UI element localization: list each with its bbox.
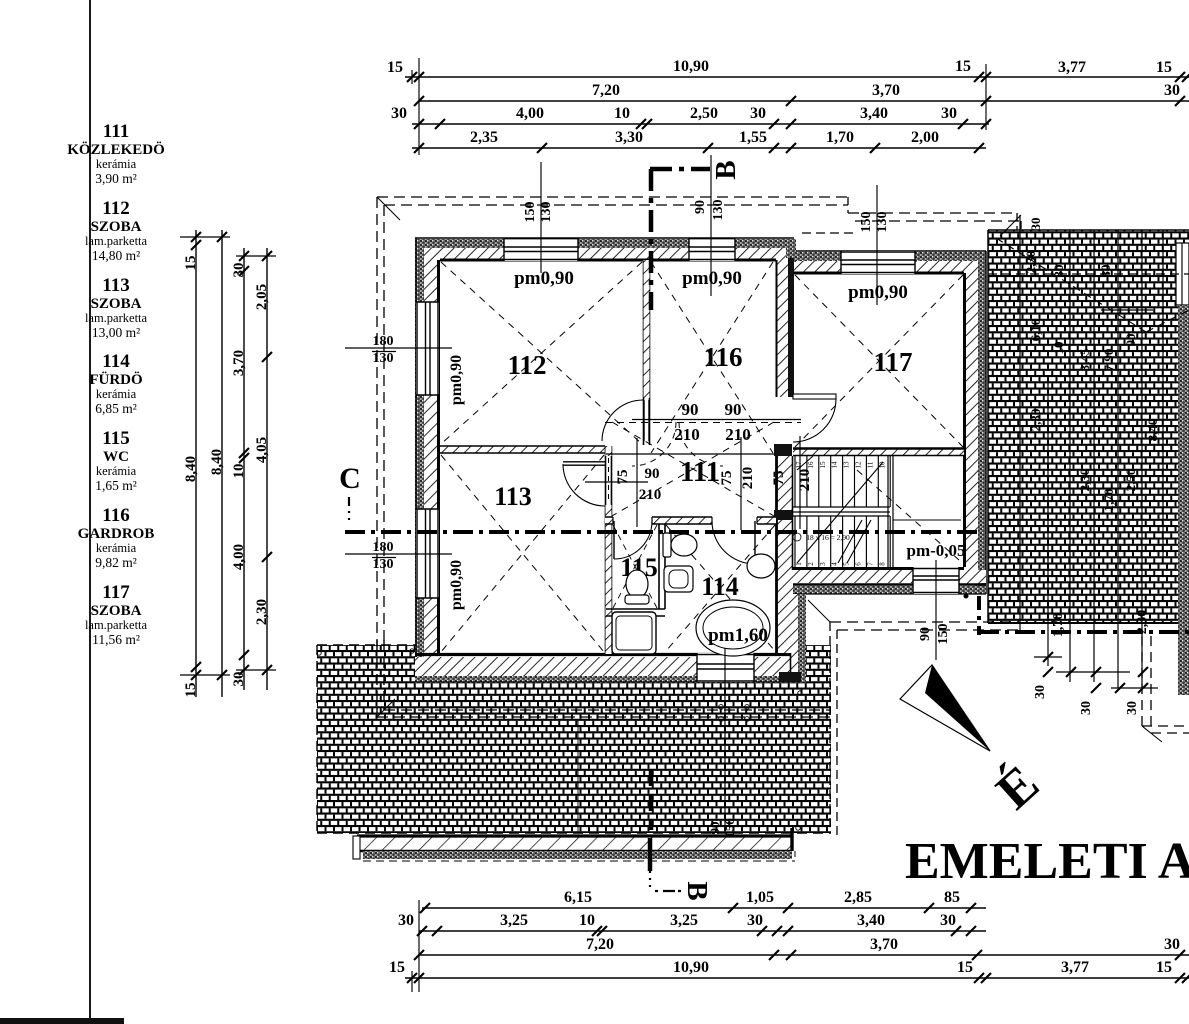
svg-text:30: 30 [941,105,957,122]
svg-text:2,30: 2,30 [254,599,270,625]
svg-text:13,00 m²: 13,00 m² [92,325,140,340]
svg-text:1,70: 1,70 [826,129,854,146]
svg-text:10: 10 [231,464,247,479]
svg-text:9,82 m²: 9,82 m² [95,555,137,570]
svg-text:7,90: 7,90 [1101,349,1116,372]
svg-text:116: 116 [102,505,129,526]
svg-text:30: 30 [747,912,763,929]
svg-text:2,30: 2,30 [1023,251,1038,274]
svg-text:kerámia: kerámia [96,464,137,478]
svg-text:kerámia: kerámia [96,387,137,401]
svg-text:C: C [339,462,361,495]
svg-text:1,70: 1,70 [1101,489,1116,512]
svg-text:180: 180 [373,540,394,555]
svg-text:2,30: 2,30 [1028,409,1043,432]
svg-text:210: 210 [639,487,662,503]
svg-text:150: 150 [936,624,951,645]
svg-text:14,80 m²: 14,80 m² [92,248,140,263]
svg-text:1,55: 1,55 [739,129,767,146]
svg-text:30: 30 [1098,265,1113,278]
svg-text:112: 112 [102,198,129,219]
svg-text:13: 13 [843,461,851,469]
svg-text:210: 210 [740,467,756,490]
svg-text:3,25: 3,25 [500,912,528,929]
svg-text:30: 30 [1033,685,1048,699]
svg-text:B: B [681,881,713,900]
svg-text:3,77: 3,77 [1058,59,1086,76]
svg-text:pm1,60: pm1,60 [708,625,768,646]
svg-text:6,15: 6,15 [564,889,592,906]
svg-text:10: 10 [1051,342,1066,355]
svg-text:15: 15 [387,59,403,76]
svg-text:30: 30 [1164,82,1180,99]
svg-text:14: 14 [831,461,839,469]
svg-text:10: 10 [579,912,595,929]
svg-text:3,90 m²: 3,90 m² [95,171,137,186]
svg-text:4,00: 4,00 [231,544,247,570]
svg-text:4: 4 [831,562,839,566]
svg-text:114: 114 [701,572,739,601]
svg-text:6: 6 [855,562,863,566]
svg-text:117: 117 [873,347,912,377]
svg-text:1,05: 1,05 [746,889,774,906]
svg-text:pm0,90: pm0,90 [448,560,465,610]
svg-text:75: 75 [719,471,735,486]
svg-text:15: 15 [819,461,827,469]
svg-text:90: 90 [725,400,742,419]
svg-text:30: 30 [1028,218,1043,231]
svg-text:11,56 m²: 11,56 m² [92,632,140,647]
svg-text:kerámia: kerámia [96,157,137,171]
svg-text:130: 130 [373,351,394,366]
svg-text:12: 12 [855,461,863,469]
svg-text:1: 1 [795,562,803,566]
svg-text:15: 15 [183,256,199,271]
svg-text:130: 130 [875,212,890,233]
svg-text:15: 15 [1156,959,1172,976]
svg-text:30: 30 [391,105,407,122]
svg-text:2: 2 [807,562,815,566]
svg-text:117: 117 [102,582,130,603]
svg-text:B: B [710,160,742,179]
svg-text:2,05: 2,05 [254,284,270,310]
svg-text:210: 210 [797,469,813,492]
svg-text:lam.parketta: lam.parketta [85,234,148,248]
svg-text:4,00: 4,00 [516,105,544,122]
svg-text:7,20: 7,20 [586,936,614,953]
svg-text:8,40: 8,40 [183,456,199,482]
svg-text:90: 90 [707,822,722,835]
svg-text:SZOBA: SZOBA [91,219,142,235]
svg-text:116: 116 [703,342,742,372]
svg-text:2,85: 2,85 [844,889,872,906]
svg-text:WC: WC [103,449,129,465]
svg-text:2,50: 2,50 [1123,469,1138,492]
svg-text:150: 150 [523,202,538,223]
svg-text:pm0,90: pm0,90 [514,268,574,289]
svg-text:113: 113 [102,275,129,296]
svg-text:pm0,90: pm0,90 [682,268,742,289]
svg-text:90: 90 [918,627,933,641]
svg-text:180: 180 [373,334,394,349]
svg-text:130: 130 [373,557,394,572]
svg-text:2,35: 2,35 [470,129,498,146]
svg-text:90: 90 [682,400,699,419]
svg-text:90: 90 [1123,334,1138,347]
svg-text:15: 15 [183,683,199,698]
svg-text:KÖZLEKEDÖ: KÖZLEKEDÖ [67,141,165,158]
svg-text:15: 15 [1156,59,1172,76]
svg-text:30: 30 [1164,936,1180,953]
svg-text:10,90: 10,90 [673,959,709,976]
svg-text:130: 130 [711,200,726,221]
svg-text:4,05: 4,05 [254,437,270,463]
svg-text:112: 112 [507,350,546,380]
svg-text:2,50: 2,50 [690,105,718,122]
svg-text:18 x 16 = 2,90: 18 x 16 = 2,90 [806,533,850,542]
svg-text:8: 8 [878,562,886,566]
svg-text:3,40: 3,40 [857,912,885,929]
svg-text:85: 85 [944,889,960,906]
svg-text:113: 113 [494,482,532,511]
svg-text:10: 10 [614,105,630,122]
svg-text:pm0,90: pm0,90 [448,355,465,405]
svg-text:115: 115 [102,428,129,449]
svg-text:90: 90 [645,466,660,482]
svg-text:16: 16 [807,461,815,469]
svg-text:30: 30 [940,912,956,929]
svg-text:6,10: 6,10 [1028,319,1043,342]
svg-text:114: 114 [102,351,130,372]
svg-text:30: 30 [1051,265,1066,278]
svg-text:7: 7 [866,562,874,566]
svg-text:6,85 m²: 6,85 m² [95,401,137,416]
svg-text:10,90: 10,90 [673,58,709,75]
svg-text:210: 210 [725,425,751,444]
svg-text:111: 111 [680,456,720,488]
svg-text:111: 111 [103,121,129,142]
svg-text:3: 3 [819,562,827,566]
svg-text:15: 15 [957,959,973,976]
svg-text:FÜRDÖ: FÜRDÖ [89,371,142,388]
svg-text:30: 30 [750,105,766,122]
svg-text:3,30: 3,30 [615,129,643,146]
svg-text:30: 30 [231,263,247,278]
svg-text:GARDROB: GARDROB [78,526,155,542]
svg-text:210: 210 [674,425,700,444]
svg-text:5: 5 [843,562,851,566]
svg-text:30: 30 [231,672,247,687]
svg-text:lam.parketta: lam.parketta [85,618,148,632]
svg-text:3,25: 3,25 [670,912,698,929]
svg-text:30: 30 [1079,701,1094,715]
svg-text:3,45: 3,45 [1077,348,1092,371]
svg-text:EMELETI ALAPRAJZ: EMELETI ALAPRAJZ [905,833,1189,890]
svg-text:8,40: 8,40 [1145,419,1160,442]
svg-text:lam.parketta: lam.parketta [85,311,148,325]
svg-text:30: 30 [398,912,414,929]
svg-text:3,70: 3,70 [231,350,247,376]
svg-text:11: 11 [866,461,874,468]
svg-text:17: 17 [795,461,803,469]
svg-text:150: 150 [722,818,737,838]
svg-text:75: 75 [771,471,787,486]
svg-text:kerámia: kerámia [96,541,137,555]
svg-text:pm-0,05: pm-0,05 [906,541,965,560]
svg-text:3,40: 3,40 [860,105,888,122]
svg-text:1,65 m²: 1,65 m² [95,478,137,493]
svg-text:15: 15 [389,959,405,976]
svg-text:75: 75 [615,470,631,485]
svg-text:3,70: 3,70 [872,82,900,99]
svg-text:SZOBA: SZOBA [91,296,142,312]
svg-text:30: 30 [1125,701,1140,715]
svg-text:2,00: 2,00 [911,129,939,146]
svg-text:3,70: 3,70 [870,936,898,953]
svg-text:7,20: 7,20 [592,82,620,99]
svg-text:90: 90 [693,200,708,214]
svg-text:2,30: 2,30 [1077,469,1092,492]
svg-text:pm0,90: pm0,90 [848,282,908,303]
svg-text:15: 15 [955,58,971,75]
svg-text:150: 150 [859,212,874,233]
svg-text:SZOBA: SZOBA [91,603,142,619]
svg-text:8,40: 8,40 [209,449,225,475]
svg-text:3,77: 3,77 [1061,959,1089,976]
svg-text:130: 130 [539,202,554,223]
